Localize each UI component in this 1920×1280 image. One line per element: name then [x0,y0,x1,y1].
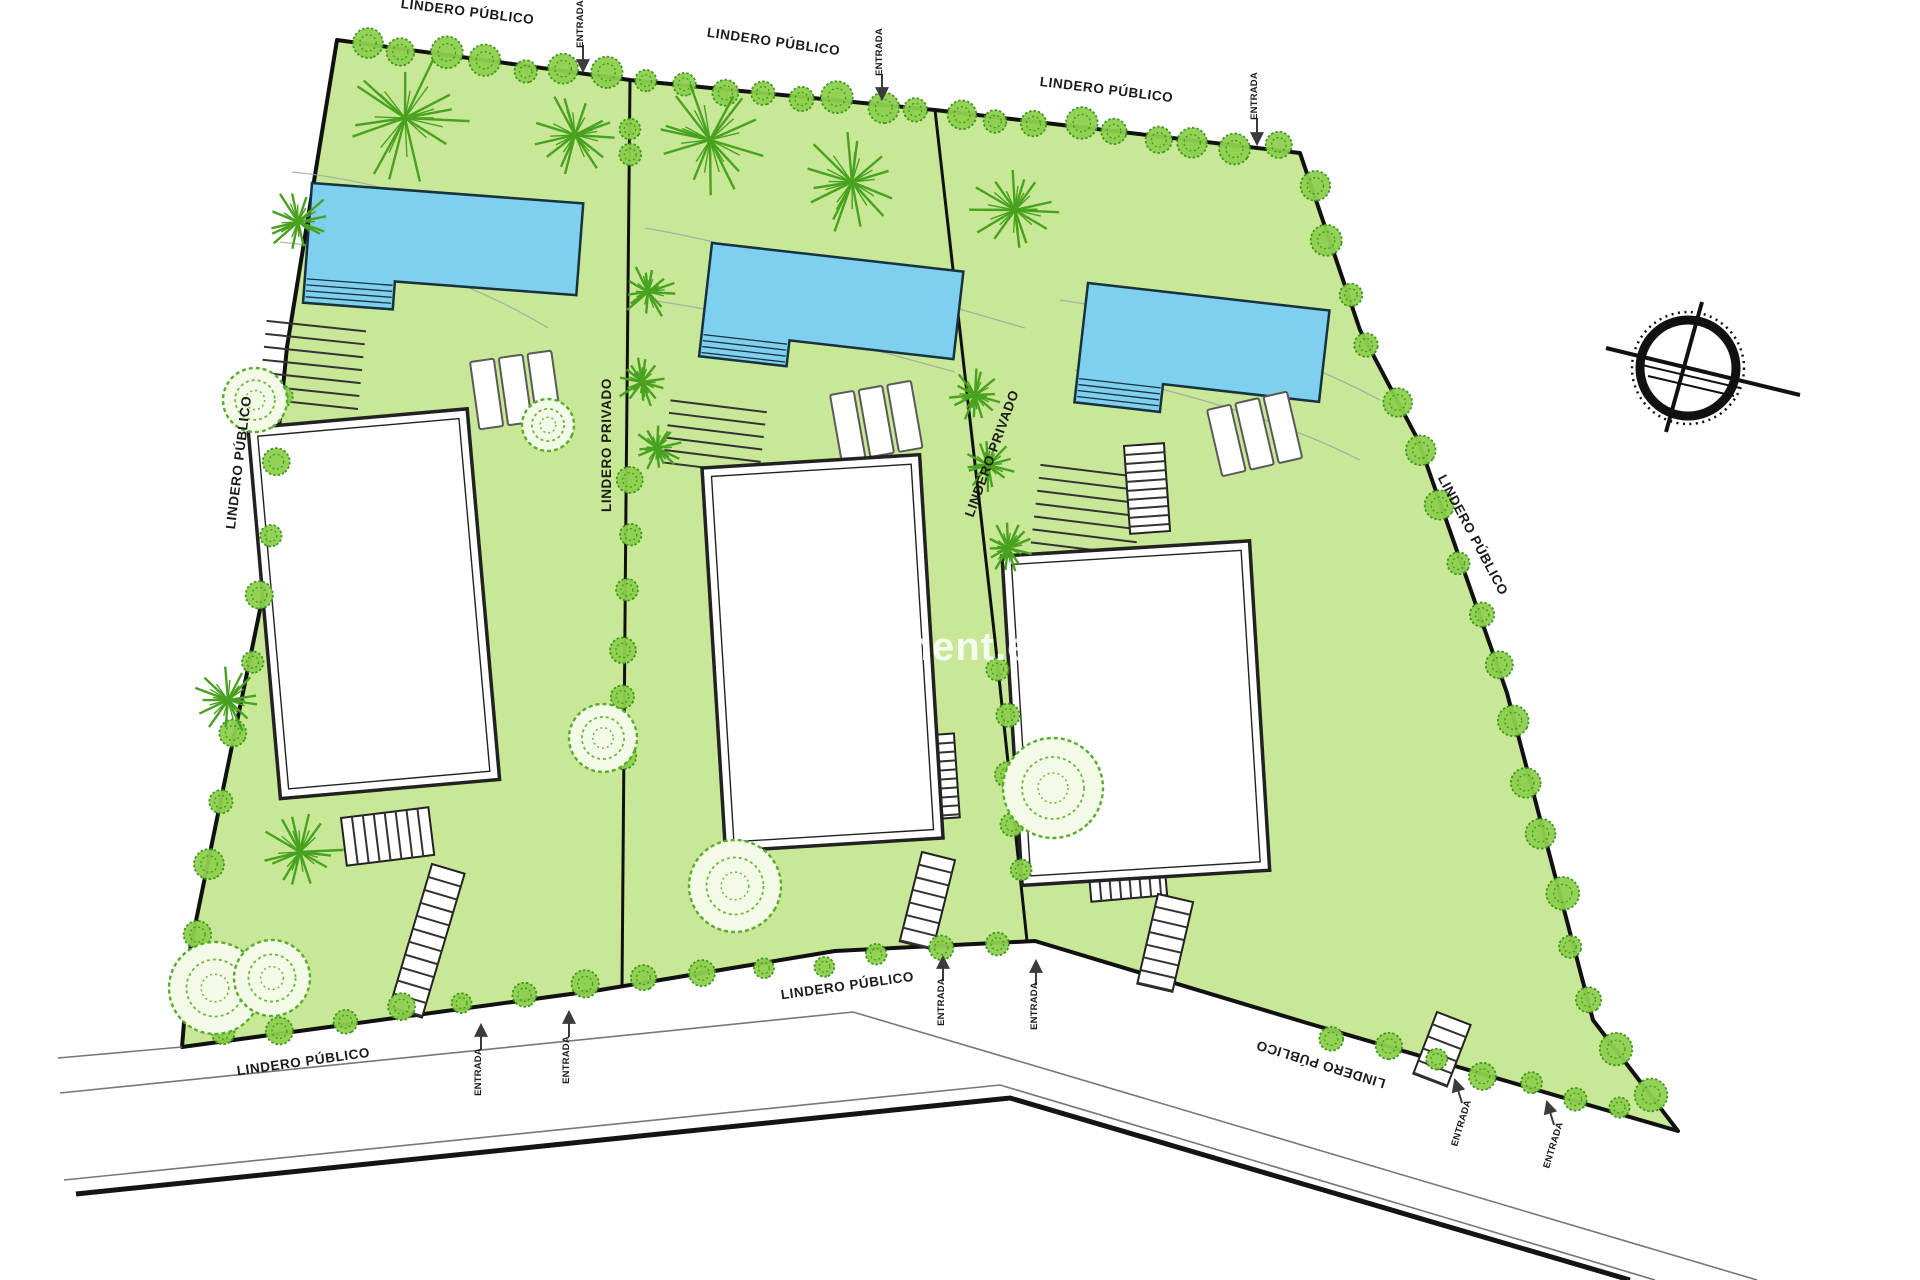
label-lindero-publico-road-right: LINDERO PÚBLICO [1254,1038,1387,1092]
label-lindero-publico-bottom-left: LINDERO PÚBLICO [236,1045,371,1079]
label-lindero-publico-top-2: LINDERO PÚBLICO [706,25,841,59]
entrada-label-top-1: ENTRADA [575,0,586,48]
site-plan: LINDERO PÚBLICO LINDERO PÚBLICO LINDERO … [0,0,1920,1280]
entrada-label-bottom-4: ENTRADA [1029,982,1040,1030]
label-lindero-privado-1: LINDERO PRIVADO [599,378,614,512]
entrada-arrow-bottom-6 [1547,1102,1554,1125]
entrada-label-bottom-5: ENTRADA [1449,1099,1474,1148]
watermark-text: oment.es [870,625,1054,669]
label-lindero-publico-top-3: LINDERO PÚBLICO [1039,74,1174,105]
label-lindero-publico-bottom-center: LINDERO PÚBLICO [780,969,915,1003]
entrada-arrow-bottom-5 [1455,1080,1462,1103]
entrada-label-bottom-3: ENTRADA [936,978,947,1026]
entrada-label-bottom-2: ENTRADA [561,1036,572,1084]
entrada-label-top-2: ENTRADA [874,28,885,76]
entrada-label-top-3: ENTRADA [1249,72,1260,120]
parking-2 [830,381,923,462]
entrada-label-bottom-6: ENTRADA [1541,1121,1566,1170]
label-lindero-publico-top-1: LINDERO PÚBLICO [400,0,535,27]
entrada-label-bottom-1: ENTRADA [473,1048,484,1096]
compass-icon [1606,302,1800,432]
